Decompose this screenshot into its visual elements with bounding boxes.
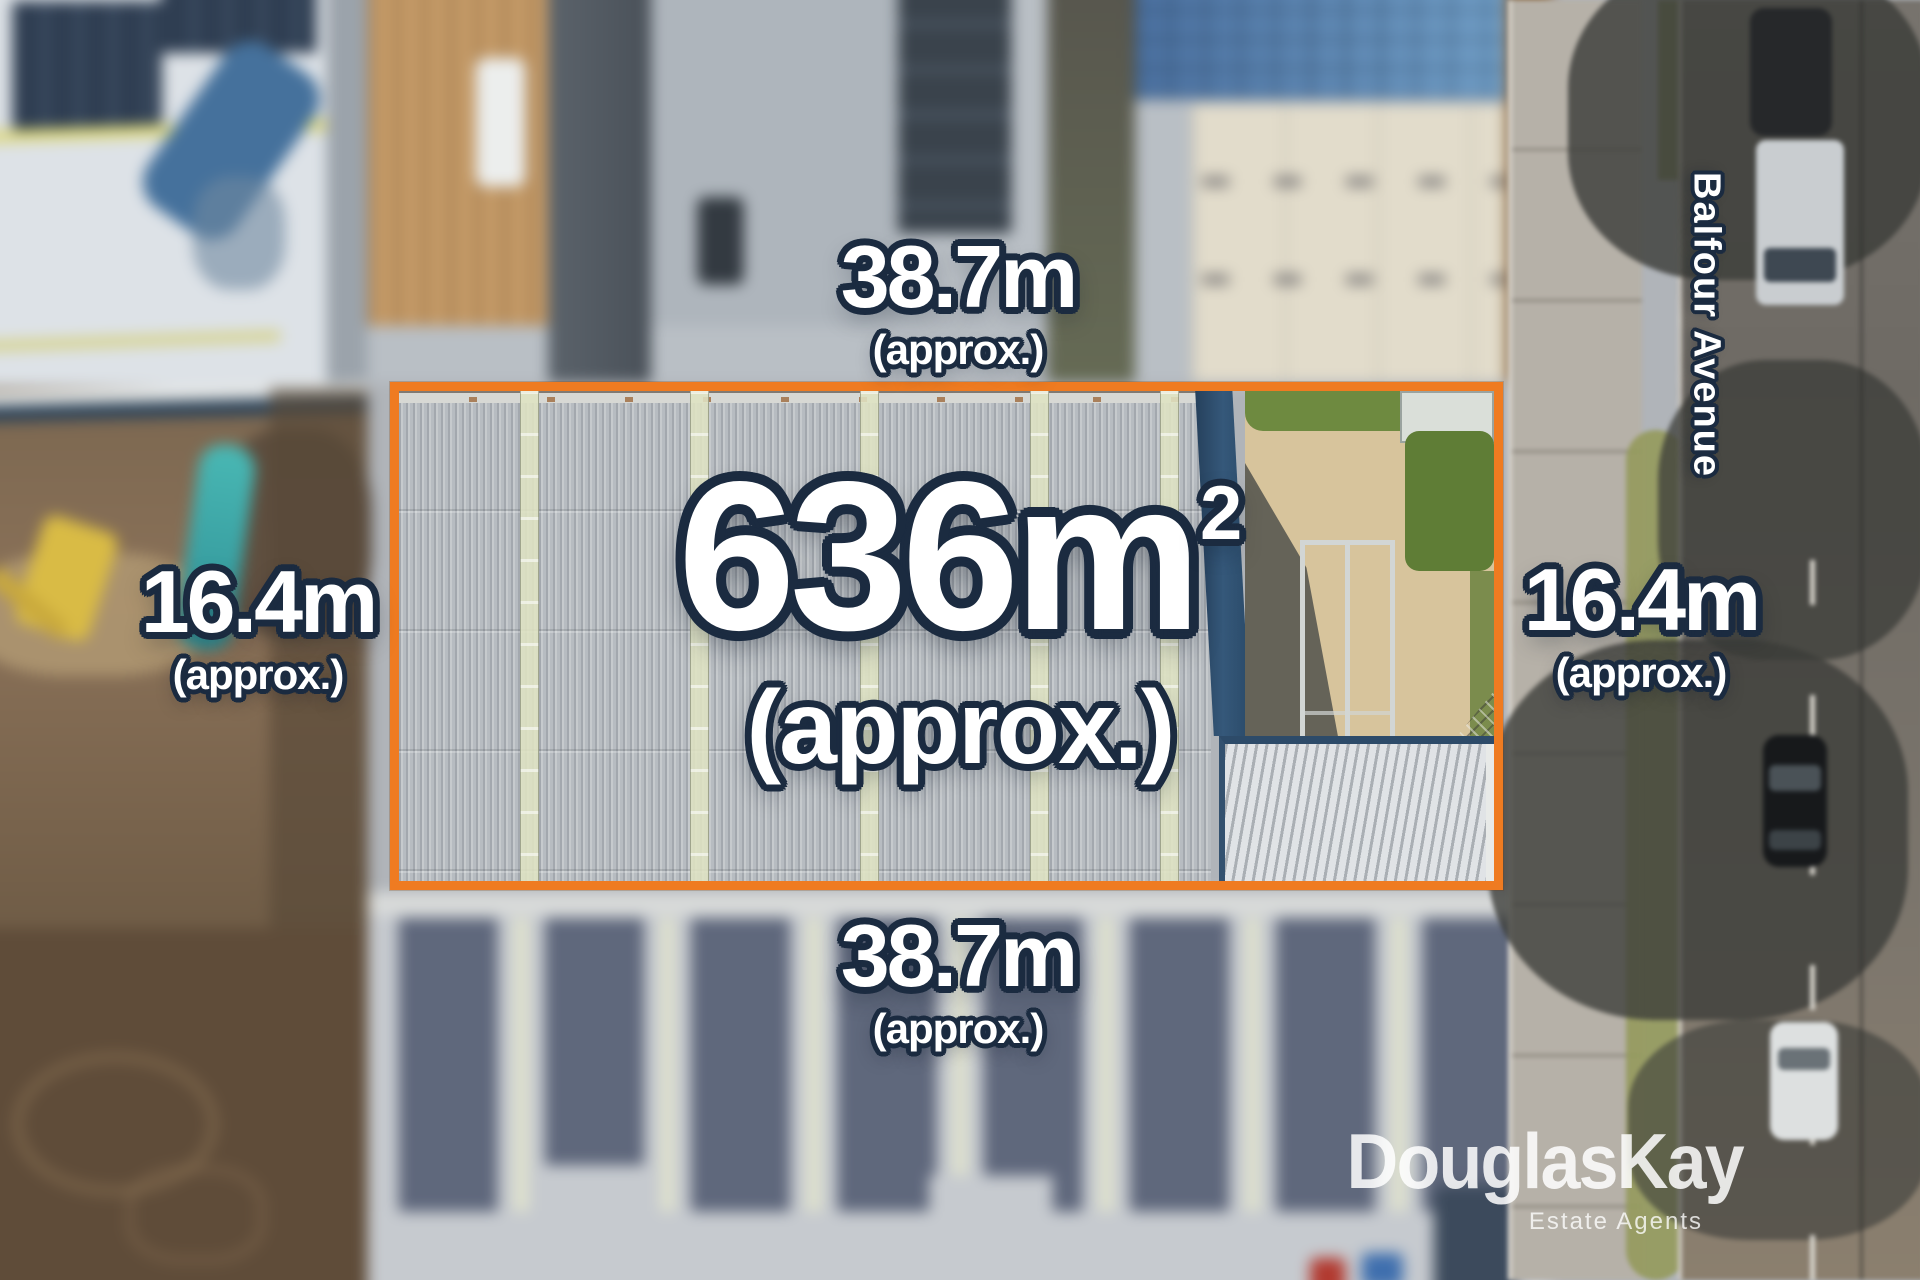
- dimension-label-right: 16.4m (approx.): [1524, 556, 1759, 694]
- blue-solar-array: [1135, 0, 1506, 99]
- small-roof: [1219, 736, 1494, 881]
- dimension-qualifier: (approx.): [873, 329, 1044, 371]
- roof-notch: [533, 1165, 646, 1227]
- street-name-label: Balfour Avenue: [1684, 172, 1728, 478]
- parked-black-car: [1763, 735, 1827, 867]
- dimension-label-top: 38.7m (approx.): [841, 233, 1076, 371]
- roof-line-marking: [0, 331, 280, 352]
- parked-truck: [1756, 140, 1844, 305]
- tree-shadow: [1568, 0, 1920, 280]
- car-windshield: [1778, 1048, 1830, 1070]
- parked-van: [1750, 8, 1832, 136]
- dimension-value: 16.4m: [1524, 556, 1759, 644]
- solar-array: [12, 1, 161, 135]
- dimension-qualifier: (approx.): [173, 654, 344, 696]
- agency-tagline: Estate Agents: [1529, 1210, 1703, 1234]
- area-value: 636m: [678, 450, 1196, 662]
- frame-top-bar: [1300, 540, 1395, 545]
- dimension-qualifier: (approx.): [1556, 652, 1727, 694]
- blue-bin: [1362, 1253, 1403, 1280]
- dark-solar-band: [898, 0, 1011, 233]
- dark-tower: [548, 0, 651, 383]
- neighbour-building-topleft: [0, 0, 368, 393]
- aerial-photo: 38.7m (approx.) 38.7m (approx.) 16.4m (a…: [0, 0, 1920, 1280]
- agency-logo: DouglasKay Estate Agents: [1312, 1122, 1743, 1234]
- dimension-label-left: 16.4m (approx.): [141, 558, 376, 696]
- shrubs-top: [1245, 391, 1425, 431]
- dimension-value: 16.4m: [141, 558, 376, 646]
- building-edge: [327, 0, 368, 393]
- dimension-value: 38.7m: [841, 912, 1076, 1000]
- skylight-strip: [520, 391, 539, 881]
- roof-notch: [929, 1176, 1053, 1228]
- parked-white-car: [1770, 1022, 1838, 1140]
- kerb-line: [1860, 0, 1863, 1280]
- area-qualifier: (approx.): [747, 676, 1174, 780]
- small-roof-eave: [1486, 744, 1494, 881]
- ground-mark: [126, 1165, 266, 1264]
- truck-windshield: [1764, 248, 1836, 282]
- dimension-qualifier: (approx.): [873, 1008, 1044, 1050]
- car-rear-window: [1769, 830, 1821, 850]
- frame-mid-bar: [1300, 711, 1395, 715]
- shrubs-right: [1405, 431, 1494, 571]
- car-windshield: [1769, 765, 1821, 791]
- dimension-value: 38.7m: [841, 233, 1076, 321]
- red-bin: [1310, 1258, 1345, 1280]
- lane-line: [1810, 560, 1815, 1280]
- dark-vehicle: [697, 197, 743, 285]
- area-superscript: 2: [1200, 476, 1242, 552]
- shadow-blob: [193, 177, 286, 290]
- area-value-row: 636m 2: [678, 450, 1243, 662]
- dirt-lot-bottom: [0, 928, 368, 1280]
- area-label: 636m 2 (approx.): [678, 450, 1243, 780]
- tree-shadow: [1488, 640, 1908, 1020]
- white-van: [476, 58, 525, 187]
- dimension-label-bottom: 38.7m (approx.): [841, 912, 1076, 1050]
- agency-name: DouglasKay: [1347, 1122, 1743, 1200]
